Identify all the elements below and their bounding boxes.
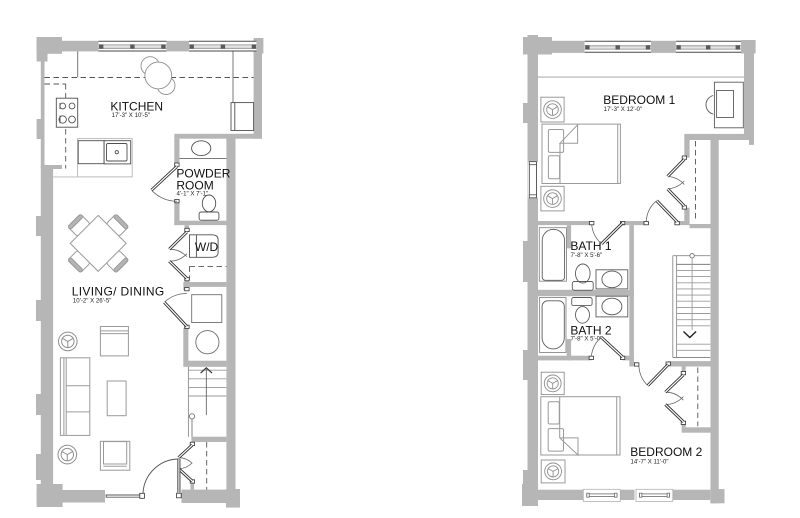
svg-text:BEDROOM 2: BEDROOM 2 <box>630 445 702 459</box>
svg-text:7'-8" X 5'-6": 7'-8" X 5'-6" <box>571 252 603 259</box>
svg-text:W/D: W/D <box>195 240 219 254</box>
svg-text:4'-1" X 7'-1": 4'-1" X 7'-1" <box>177 191 209 198</box>
svg-text:17'-3" X 12'-0": 17'-3" X 12'-0" <box>604 106 643 113</box>
svg-text:10'-2" X 26'-5": 10'-2" X 26'-5" <box>73 298 112 305</box>
svg-text:LIVING/ DINING: LIVING/ DINING <box>72 284 165 298</box>
svg-text:14'-7" X 11'-0": 14'-7" X 11'-0" <box>631 458 669 465</box>
svg-text:17'-3" X 10'-5": 17'-3" X 10'-5" <box>112 112 151 119</box>
